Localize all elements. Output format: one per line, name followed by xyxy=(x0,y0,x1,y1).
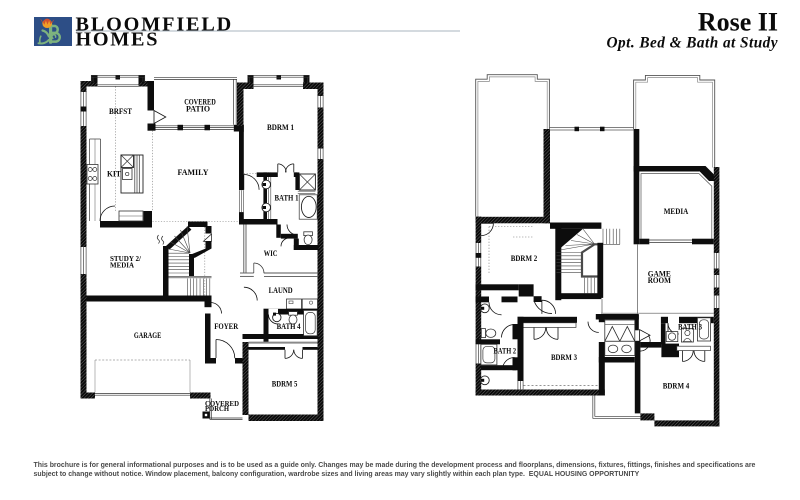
svg-text:MEDIA: MEDIA xyxy=(664,206,689,216)
svg-text:BATH 2: BATH 2 xyxy=(494,345,517,355)
svg-text:KIT: KIT xyxy=(107,169,121,179)
svg-text:MEDIA: MEDIA xyxy=(110,261,134,270)
svg-text:LAUND: LAUND xyxy=(269,285,293,295)
svg-text:Rose II: Rose II xyxy=(698,8,778,37)
svg-text:GARAGE: GARAGE xyxy=(134,330,162,340)
svg-text:FAMILY: FAMILY xyxy=(178,167,210,177)
svg-text:FOYER: FOYER xyxy=(214,321,238,331)
svg-text:BRFST: BRFST xyxy=(109,106,132,116)
svg-text:BATH 3: BATH 3 xyxy=(678,321,702,331)
svg-text:ROOM: ROOM xyxy=(648,275,672,285)
svg-text:BDRM 5: BDRM 5 xyxy=(272,378,298,388)
svg-text:PORCH: PORCH xyxy=(205,406,230,413)
svg-text:PATIO: PATIO xyxy=(186,105,211,114)
svg-text:BATH 4: BATH 4 xyxy=(277,321,301,331)
svg-text:BDRM 4: BDRM 4 xyxy=(663,381,690,391)
svg-text:BDRM 2: BDRM 2 xyxy=(511,253,538,263)
svg-text:BDRM 1: BDRM 1 xyxy=(267,122,294,132)
svg-text:Opt. Bed & Bath at Study: Opt. Bed & Bath at Study xyxy=(607,35,778,52)
svg-text:WIC: WIC xyxy=(264,248,278,258)
svg-text:BDRM 3: BDRM 3 xyxy=(551,352,577,362)
svg-text:BATH 1: BATH 1 xyxy=(275,193,299,203)
svg-text:HOMES: HOMES xyxy=(76,29,160,51)
